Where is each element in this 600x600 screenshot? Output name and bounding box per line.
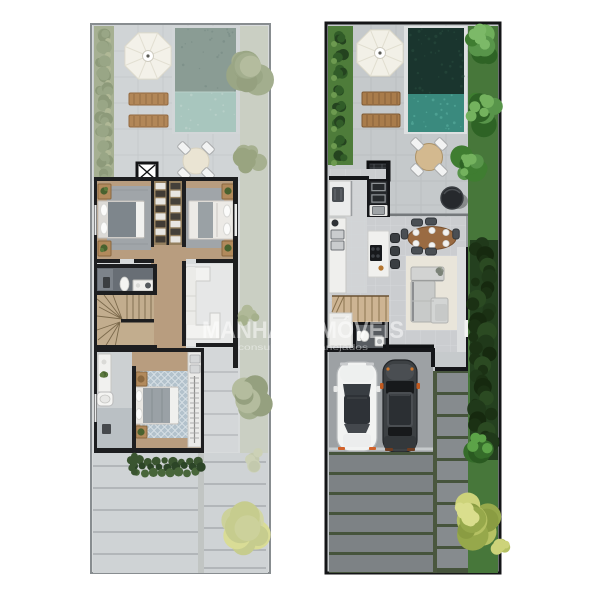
svg-text:consultoria e planejados: consultoria e planejados [238,343,368,352]
svg-text:MANHÃES MÓVEIS: MANHÃES MÓVEIS [202,316,404,344]
